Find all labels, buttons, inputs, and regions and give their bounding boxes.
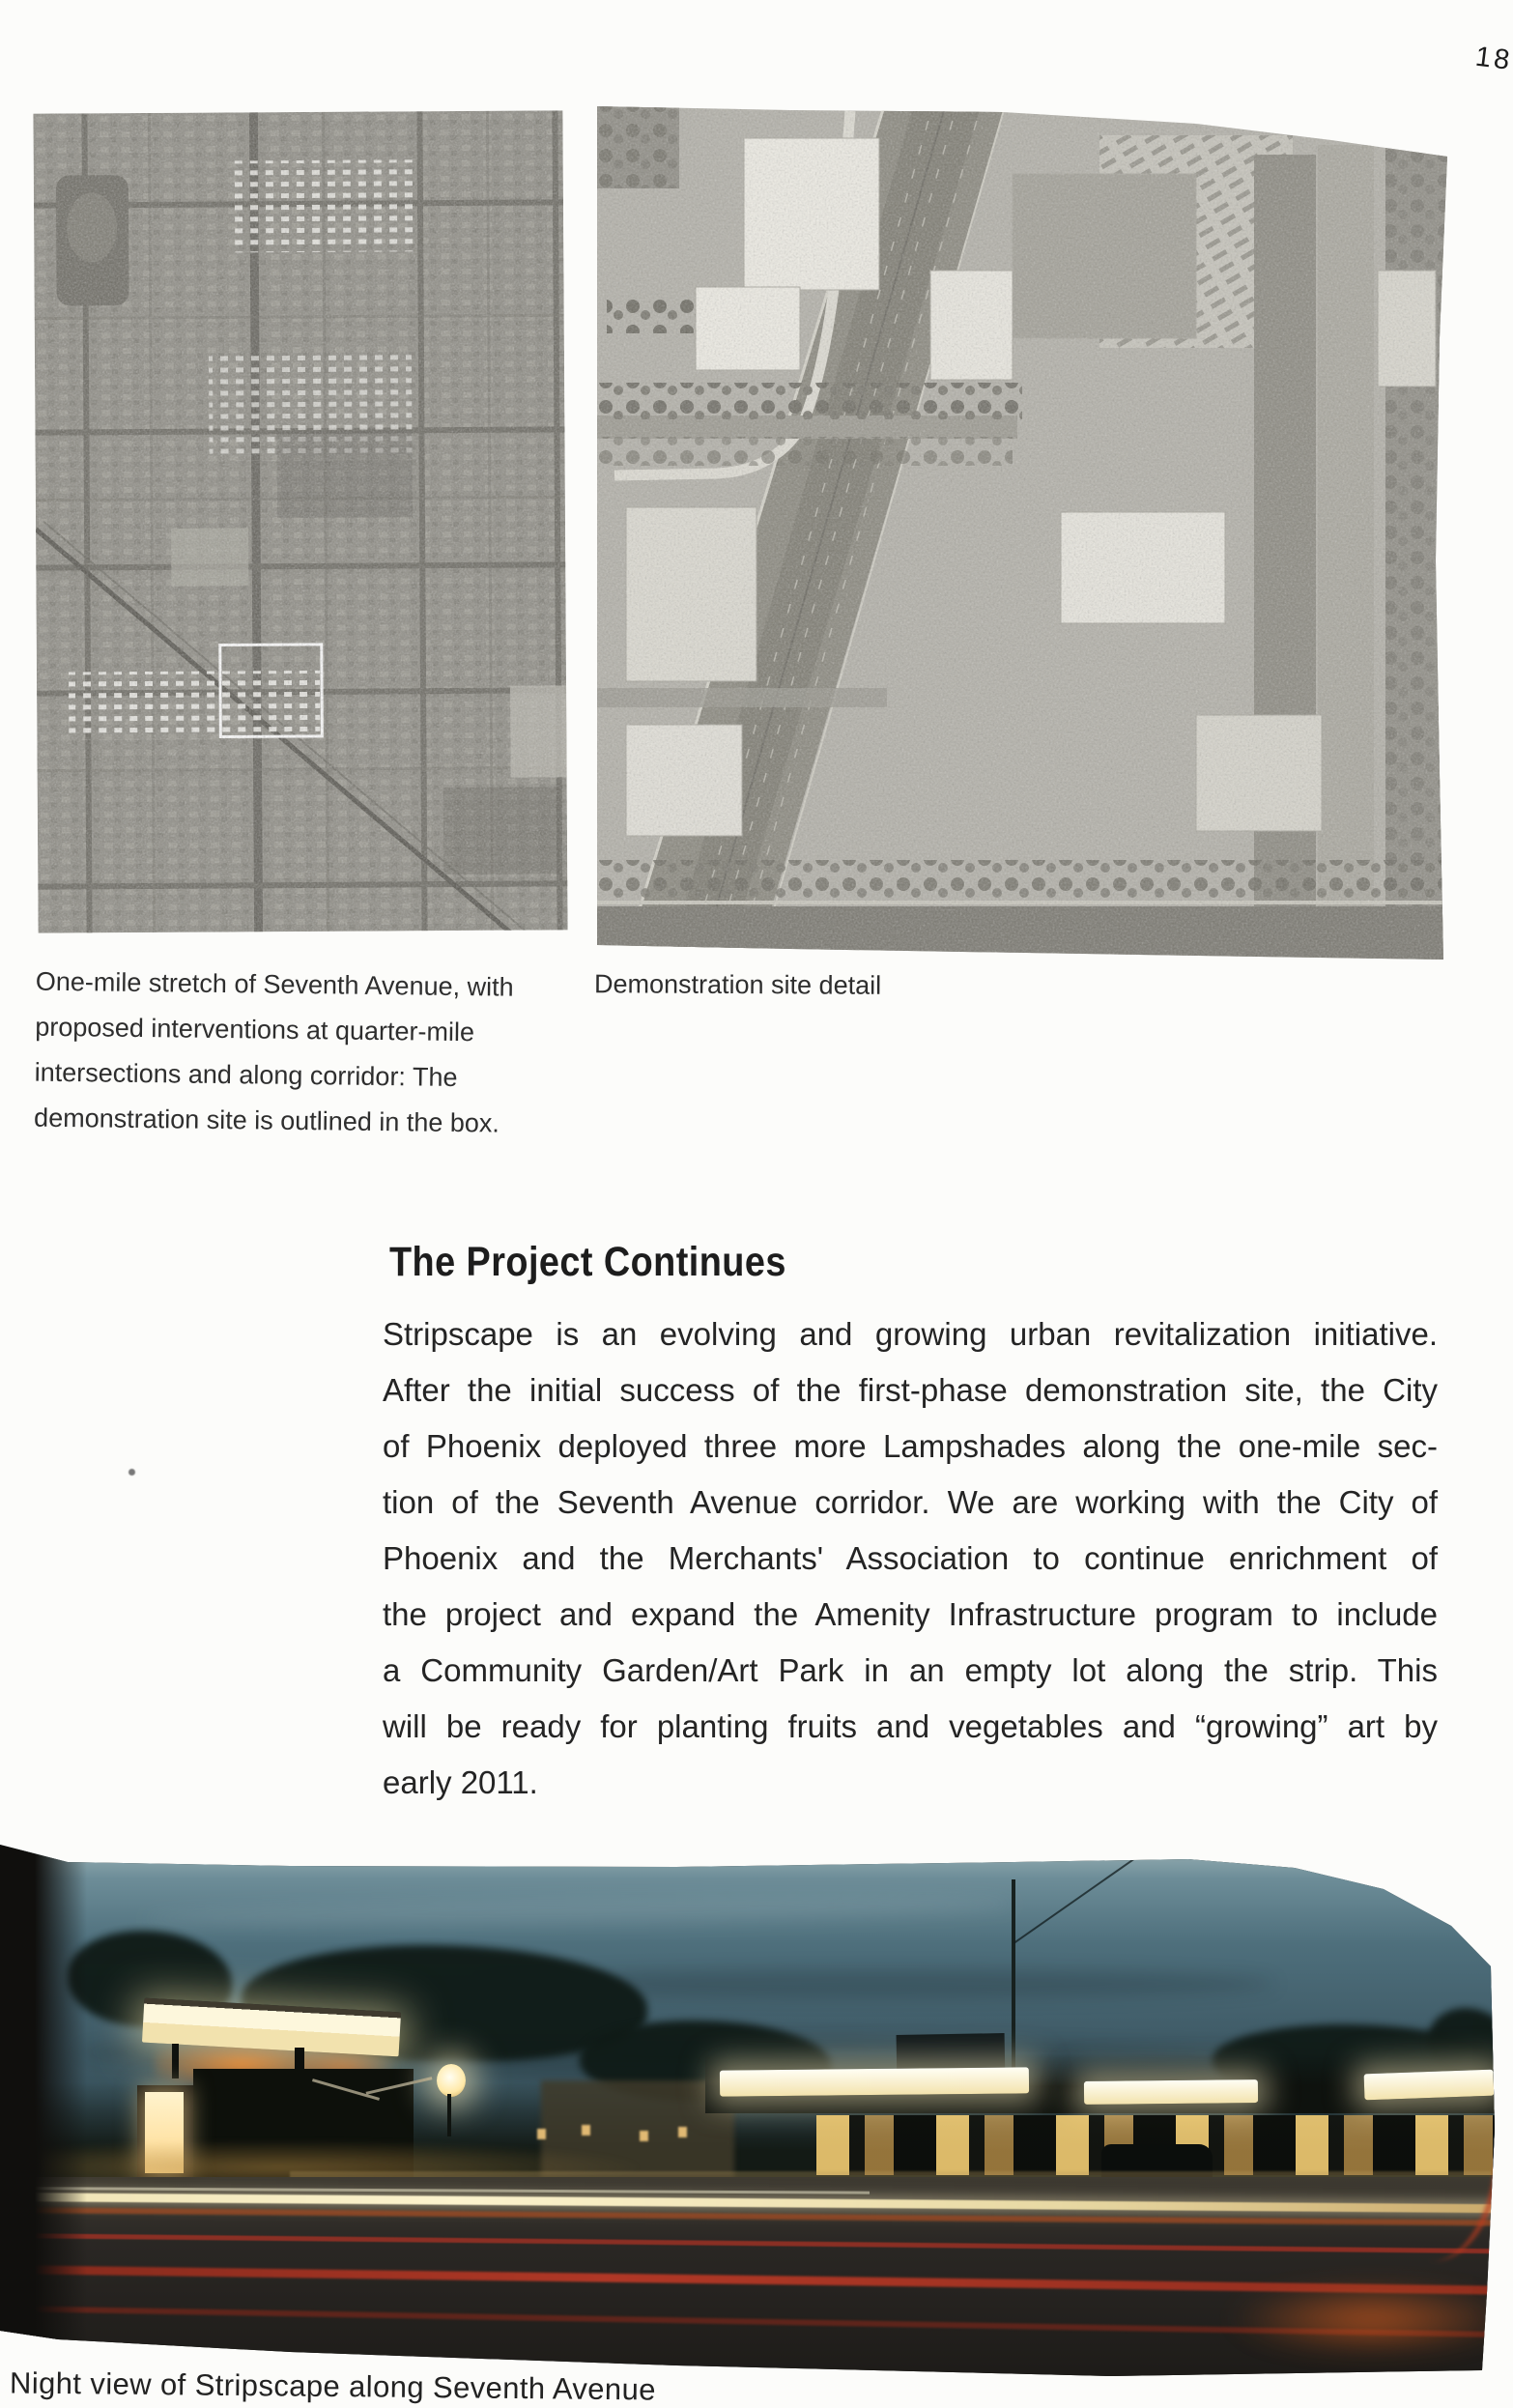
canopy-strut [172,2044,179,2078]
turning-taillight-streak [1404,2124,1506,2270]
body-line: tion of the Seventh Avenue corridor. We … [383,1475,1438,1531]
cap-line: intersections and along corridor: The [34,1050,564,1103]
body-line: of Phoenix deployed three more Lampshade… [383,1419,1438,1475]
taillight-glow [1227,2285,1513,2353]
body-line: will be ready for planting fruits and ve… [383,1699,1438,1755]
cap-line: One-mile stretch of Seventh Avenue, with [36,960,566,1012]
body-line: After the initial success of the first-p… [383,1362,1438,1419]
utility-pole [1012,1879,1015,2071]
distant-light [640,2131,648,2141]
body-line: Stripscape is an evolving and growing ur… [383,1306,1438,1362]
print-speck [128,1469,135,1476]
page-gutter-shadow [0,1839,87,2383]
aerial-overview-graphic [33,110,567,932]
body-line: early 2011. [383,1755,1438,1811]
glowing-canopy-strip [1084,2079,1258,2105]
right-figure-caption: Demonstration site detail [594,969,881,1001]
distant-light [678,2127,687,2137]
lamp-post [447,2094,451,2136]
body-line: a Community Garden/Art Park in an empty … [383,1643,1438,1699]
distant-light [537,2129,546,2139]
left-figure-caption: One-mile stretch of Seventh Avenue, with… [34,960,565,1148]
night-photo-caption: Night view of Stripscape along Seventh A… [10,2365,656,2407]
cap-line: demonstration site is outlined in the bo… [34,1096,564,1148]
body-line: the project and expand the Amenity Infra… [383,1587,1438,1643]
section-heading: The Project Continues [389,1239,786,1286]
globe-street-lamp [437,2064,466,2097]
aerial-detail-image [597,97,1447,960]
distant-light [582,2125,590,2136]
aerial-detail-graphic [597,97,1447,960]
book-page: 186 [0,0,1513,2408]
page-number: 186 [1473,42,1513,80]
film-grain [597,97,1447,960]
aerial-overview-image [33,110,567,932]
body-line: Phoenix and the Merchants' Association t… [383,1531,1438,1587]
glowing-canopy-strip [1364,2070,1495,2101]
night-photo [0,1839,1513,2383]
article-body: Stripscape is an evolving and growing ur… [383,1306,1438,1811]
cap-line: proposed interventions at quarter-mile [35,1005,565,1057]
glowing-canopy-strip [720,2067,1029,2096]
film-grain [33,110,567,932]
